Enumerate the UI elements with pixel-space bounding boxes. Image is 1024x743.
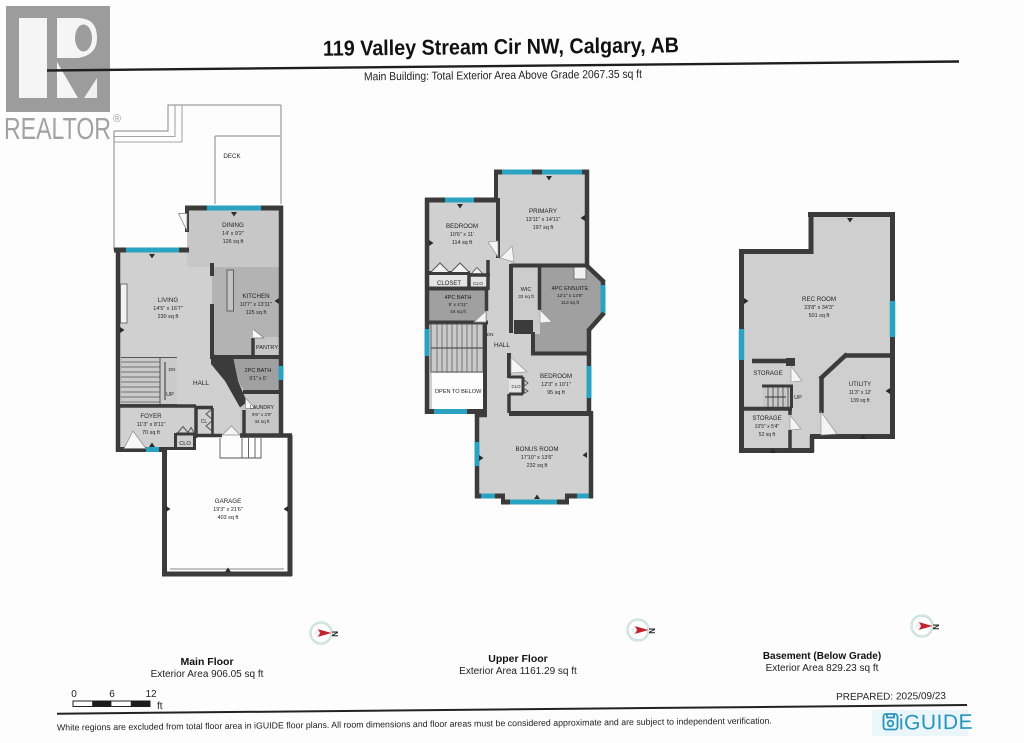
svg-text:FOYER: FOYER [140,413,162,420]
svg-text:34 sq ft: 34 sq ft [254,419,270,424]
svg-text:Exterior Area 1161.29 sq ft: Exterior Area 1161.29 sq ft [459,666,577,677]
svg-text:STORAGE: STORAGE [753,371,782,377]
svg-text:iGUIDE: iGUIDE [899,711,973,735]
svg-text:REALTOR: REALTOR [4,111,111,146]
svg-text:10'7" x 13'11": 10'7" x 13'11" [240,302,272,308]
svg-text:Main Floor: Main Floor [180,656,233,668]
svg-text:33 sq ft: 33 sq ft [518,294,534,300]
svg-text:Basement (Below Grade): Basement (Below Grade) [763,651,881,662]
svg-text:230 sq ft: 230 sq ft [158,314,179,320]
svg-text:CLO: CLO [179,441,191,447]
svg-text:501 sq ft: 501 sq ft [809,313,830,319]
svg-text:KITCHEN: KITCHEN [242,293,269,300]
svg-text:17'10" x 13'6": 17'10" x 13'6" [521,455,554,461]
svg-text:13'11" x 14'11": 13'11" x 14'11" [526,217,561,223]
svg-text:11'3" x 12': 11'3" x 12' [849,390,872,396]
svg-text:WIC: WIC [521,287,532,293]
svg-text:0: 0 [71,689,77,700]
svg-text:Exterior Area 829.23 sq ft: Exterior Area 829.23 sq ft [766,663,879,674]
svg-text:12'3" x 10'1": 12'3" x 10'1" [541,382,571,388]
svg-text:Upper Floor: Upper Floor [488,653,548,665]
svg-text:23'8" x 34'3": 23'8" x 34'3" [804,305,834,311]
svg-text:6'1" x 6': 6'1" x 6' [249,376,266,382]
svg-text:GARAGE: GARAGE [215,498,241,505]
svg-text:125 sq ft: 125 sq ft [246,310,267,316]
svg-text:®: ® [113,113,121,125]
svg-text:PREPARED: 2025/09/23: PREPARED: 2025/09/23 [836,691,946,703]
svg-text:12: 12 [145,689,157,700]
svg-text:70 sq ft: 70 sq ft [142,430,160,436]
svg-text:126 sq ft: 126 sq ft [223,239,244,245]
svg-text:Exterior Area 906.05 sq ft: Exterior Area 906.05 sq ft [151,669,264,680]
svg-text:CLO: CLO [511,384,521,389]
svg-text:6: 6 [109,689,115,700]
svg-text:CL: CL [201,419,208,425]
svg-text:DECK: DECK [223,153,241,160]
svg-text:BONUS ROOM: BONUS ROOM [516,446,559,453]
svg-text:UP: UP [166,392,174,398]
svg-text:2PC BATH: 2PC BATH [245,368,272,374]
svg-text:14'5" x 16'7": 14'5" x 16'7" [153,306,183,312]
svg-text:10'5" x 5'4": 10'5" x 5'4" [755,424,780,430]
svg-text:DINING: DINING [222,222,244,229]
svg-text:OPEN TO BELOW: OPEN TO BELOW [435,389,482,395]
svg-text:DN: DN [487,332,494,338]
svg-text:197 sq ft: 197 sq ft [533,225,554,231]
svg-text:9' x 4'11": 9' x 4'11" [449,302,468,308]
svg-text:44 sq ft: 44 sq ft [450,309,466,315]
svg-text:LAUNDRY: LAUNDRY [250,405,274,411]
svg-text:403 sq ft: 403 sq ft [218,515,239,521]
svg-text:ft: ft [157,701,163,712]
svg-text:113 sq ft: 113 sq ft [561,300,580,306]
svg-text:PRIMARY: PRIMARY [529,208,557,215]
svg-text:DN: DN [169,367,176,373]
svg-text:PANTRY: PANTRY [256,345,278,351]
svg-text:STORAGE: STORAGE [752,416,781,422]
svg-text:UTILITY: UTILITY [849,382,871,388]
svg-text:HALL: HALL [494,342,510,349]
svg-text:11'3" x 8'11": 11'3" x 8'11" [137,422,166,428]
svg-text:4PC ENSUITE: 4PC ENSUITE [552,286,589,292]
svg-text:139 sq ft: 139 sq ft [850,398,870,404]
svg-text:9'6" x 3'6": 9'6" x 3'6" [252,412,272,417]
svg-text:19'3" x 21'6": 19'3" x 21'6" [213,507,243,513]
svg-text:CLO: CLO [473,281,483,287]
svg-text:232 sq ft: 232 sq ft [527,463,548,469]
svg-text:LIVING: LIVING [158,297,178,304]
svg-text:BEDROOM: BEDROOM [446,223,478,230]
svg-text:12'1" x 13'8": 12'1" x 13'8" [557,293,584,299]
svg-text:95 sq ft: 95 sq ft [547,390,565,396]
svg-text:119 Valley Stream Cir NW, Calg: 119 Valley Stream Cir NW, Calgary, AB [323,33,679,60]
svg-text:4PC BATH: 4PC BATH [445,295,472,301]
svg-text:14' x 9'2": 14' x 9'2" [222,231,244,237]
svg-text:UP: UP [794,395,802,401]
svg-text:52 sq ft: 52 sq ft [759,432,776,438]
svg-text:CLOSET: CLOSET [437,281,461,287]
svg-text:10'6" x 11': 10'6" x 11' [450,232,474,238]
svg-text:REC ROOM: REC ROOM [802,296,836,303]
svg-text:HALL: HALL [193,380,209,387]
svg-text:114 sq ft: 114 sq ft [452,240,473,246]
svg-text:BEDROOM: BEDROOM [540,373,572,380]
